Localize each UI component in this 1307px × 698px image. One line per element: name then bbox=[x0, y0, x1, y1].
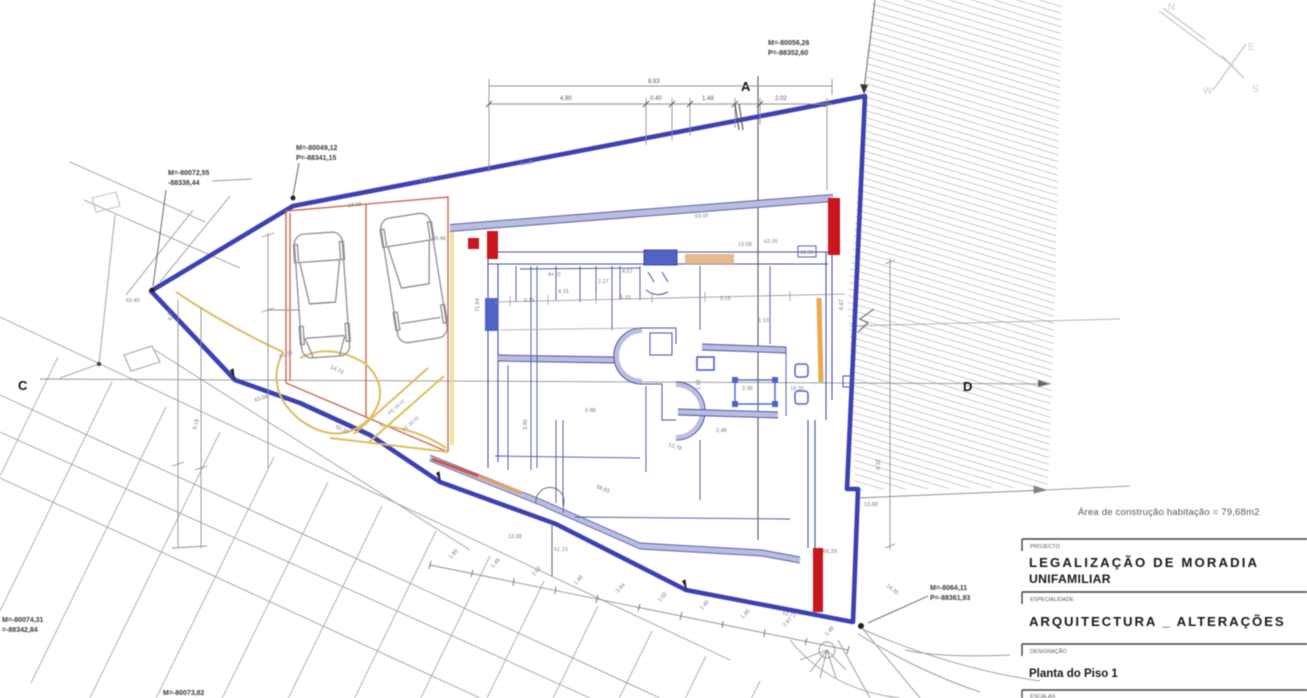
svg-text:0.88: 0.88 bbox=[585, 408, 596, 414]
svg-text:4.57: 4.57 bbox=[622, 269, 633, 275]
svg-text:4.32: 4.32 bbox=[876, 459, 882, 470]
svg-text:UNIFAMILIAR: UNIFAMILIAR bbox=[1029, 572, 1111, 586]
svg-text:ARQUITECTURA _ ALTERAÇÕES: ARQUITECTURA _ ALTERAÇÕES bbox=[1029, 614, 1286, 629]
svg-text:3.95: 3.95 bbox=[523, 419, 529, 430]
svg-text:P=-88341,15: P=-88341,15 bbox=[296, 155, 336, 162]
svg-text:63.05: 63.05 bbox=[764, 239, 778, 245]
svg-text:ESPECIALIDADE: ESPECIALIDADE bbox=[1030, 597, 1074, 603]
svg-text:13.48: 13.48 bbox=[432, 236, 446, 242]
svg-text:D: D bbox=[963, 379, 972, 394]
svg-text:2.02: 2.02 bbox=[775, 96, 787, 102]
svg-text:0.15: 0.15 bbox=[524, 298, 535, 304]
svg-text:M=-80073,82: M=-80073,82 bbox=[163, 690, 205, 697]
svg-text:1.48: 1.48 bbox=[702, 96, 714, 102]
svg-text:ESCALAS: ESCALAS bbox=[1030, 694, 1056, 698]
svg-text:1.10: 1.10 bbox=[758, 318, 769, 324]
svg-text:DESIGNAÇÃO: DESIGNAÇÃO bbox=[1030, 648, 1067, 655]
svg-text:-88338,44: -88338,44 bbox=[168, 180, 200, 187]
svg-text:2.17: 2.17 bbox=[598, 279, 609, 285]
svg-text:4.15: 4.15 bbox=[558, 289, 569, 295]
svg-text:13.08: 13.08 bbox=[348, 202, 362, 209]
svg-text:M=-80056,26: M=-80056,26 bbox=[768, 40, 810, 47]
svg-text:M=-8064,11: M=-8064,11 bbox=[930, 585, 967, 592]
svg-text:63.05: 63.05 bbox=[695, 213, 709, 220]
svg-text:60.29: 60.29 bbox=[823, 549, 837, 555]
svg-text:6.07: 6.07 bbox=[168, 309, 174, 320]
svg-text:13.38: 13.38 bbox=[508, 534, 522, 540]
svg-text:2.36: 2.36 bbox=[742, 386, 753, 392]
svg-text:4+10: 4+10 bbox=[548, 272, 560, 278]
svg-text:13.88: 13.88 bbox=[864, 502, 878, 508]
svg-text:0.15: 0.15 bbox=[720, 296, 731, 302]
svg-text:18.30: 18.30 bbox=[790, 386, 804, 392]
svg-text:61.10: 61.10 bbox=[554, 547, 568, 553]
svg-text:4.80: 4.80 bbox=[560, 96, 572, 102]
svg-text:N: N bbox=[1168, 2, 1175, 13]
svg-text:A: A bbox=[741, 79, 751, 94]
svg-text:M=-80049,12: M=-80049,12 bbox=[296, 145, 338, 152]
svg-text:P=-88361,93: P=-88361,93 bbox=[930, 595, 970, 602]
svg-text:P=-88352,60: P=-88352,60 bbox=[768, 50, 808, 57]
svg-text:63.40: 63.40 bbox=[126, 298, 140, 304]
svg-text:2.48: 2.48 bbox=[716, 428, 727, 434]
svg-text:S: S bbox=[1252, 84, 1259, 95]
svg-text:M=-80074,31: M=-80074,31 bbox=[2, 617, 44, 624]
svg-text:=-88342,84: =-88342,84 bbox=[2, 627, 38, 634]
svg-text:6.67: 6.67 bbox=[839, 299, 845, 310]
svg-text:M=-80072,55: M=-80072,55 bbox=[168, 170, 210, 177]
svg-text:8.83: 8.83 bbox=[648, 79, 660, 85]
svg-text:W: W bbox=[1203, 86, 1213, 97]
svg-text:C: C bbox=[18, 378, 28, 393]
svg-text:Planta do Piso 1: Planta do Piso 1 bbox=[1029, 668, 1118, 680]
svg-text:18.30: 18.30 bbox=[800, 250, 814, 256]
svg-text:71.64: 71.64 bbox=[475, 298, 481, 312]
svg-text:0.40: 0.40 bbox=[650, 96, 662, 102]
svg-text:PROJECTO: PROJECTO bbox=[1030, 544, 1061, 550]
svg-text:1.92: 1.92 bbox=[696, 379, 702, 390]
svg-text:Área de construção habitação =: Área de construção habitação = 79,68m2 bbox=[1078, 507, 1260, 518]
svg-text:E: E bbox=[1248, 42, 1255, 53]
svg-text:13.08: 13.08 bbox=[738, 242, 752, 248]
svg-text:5.15: 5.15 bbox=[620, 295, 631, 301]
svg-text:LEGALIZAÇÃO DE MORADIA: LEGALIZAÇÃO DE MORADIA bbox=[1029, 555, 1259, 570]
